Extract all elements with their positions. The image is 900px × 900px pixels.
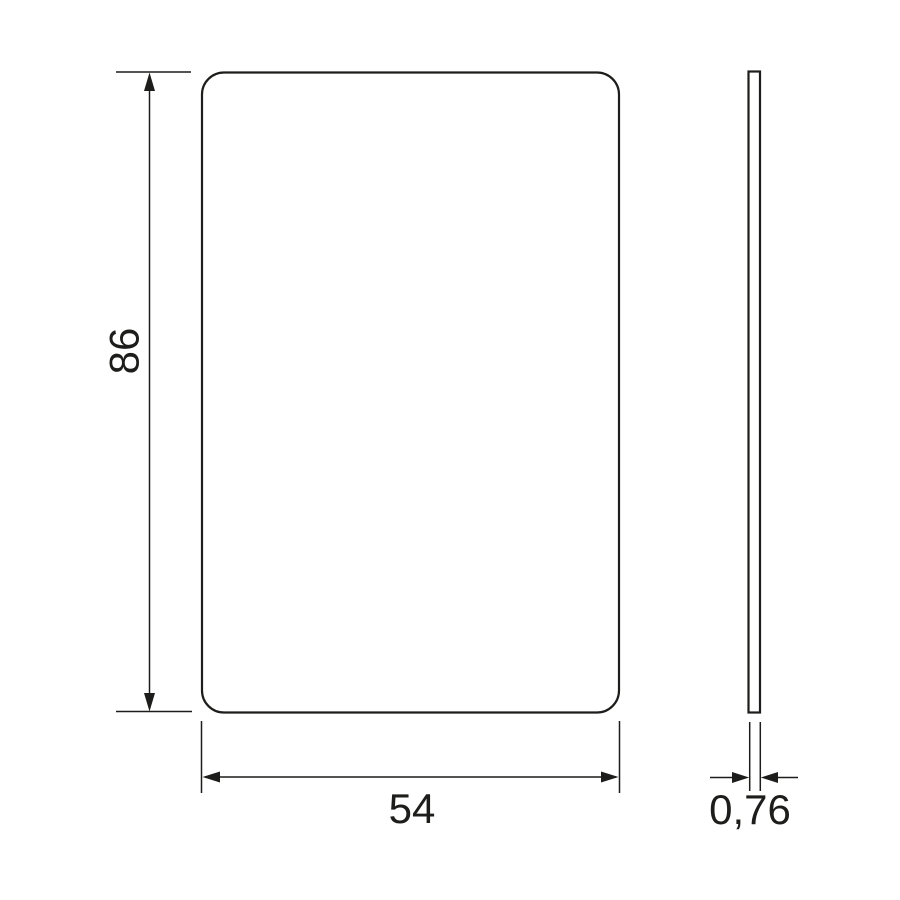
arrowhead-left-icon — [761, 772, 778, 783]
arrowhead-down-icon — [144, 693, 155, 712]
arrowhead-right-icon — [601, 772, 619, 783]
arrowhead-left-icon — [203, 772, 221, 783]
card-front-view — [202, 73, 619, 713]
thickness-dimension: 0,76 — [709, 722, 798, 833]
technical-drawing-canvas: 86 54 0,76 — [0, 0, 900, 900]
card-side-view — [749, 72, 761, 713]
height-dimension-label: 86 — [101, 328, 148, 375]
height-dimension: 86 — [101, 72, 193, 712]
arrowhead-right-icon — [732, 772, 749, 783]
card-front-outline — [202, 73, 619, 713]
thickness-dimension-label: 0,76 — [709, 786, 791, 833]
card-side-outline — [749, 72, 761, 713]
arrowhead-up-icon — [144, 73, 155, 92]
width-dimension-label: 54 — [389, 785, 436, 832]
card-dimension-drawing: 86 54 0,76 — [0, 0, 900, 900]
width-dimension: 54 — [202, 721, 620, 832]
